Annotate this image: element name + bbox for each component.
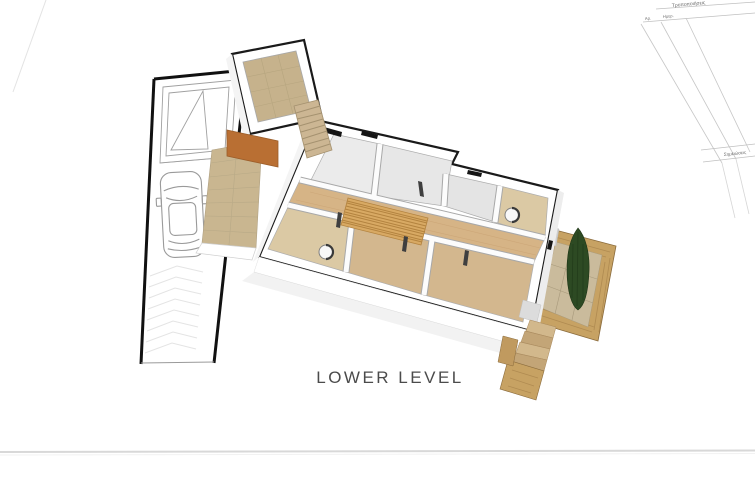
title-block: Τροποποιήσεις Αρ. Ημερ. Σημειώσεις — [641, 0, 755, 218]
sheet-bottom-border — [0, 451, 755, 453]
notes-header-label: Σημειώσεις — [723, 149, 747, 157]
plan-level-label: LOWER LEVEL — [316, 368, 464, 387]
building-main-block — [242, 117, 564, 358]
revisions-header-label: Τροποποιήσεις — [672, 0, 707, 9]
car-body — [160, 171, 205, 258]
title-block-notes-line — [703, 156, 755, 162]
revision-number-column-label: Αρ. — [645, 15, 652, 21]
title-block-line — [643, 13, 755, 22]
title-block-column-line — [736, 159, 749, 214]
floor-plan-svg: Τροποποιήσεις Αρ. Ημερ. Σημειώσεις — [0, 0, 755, 503]
drawing-sheet: Τροποποιήσεις Αρ. Ημερ. Σημειώσεις — [0, 0, 755, 503]
title-block-column-line — [722, 163, 735, 218]
sheet-bottom-border-shadow — [0, 454, 755, 456]
title-block-column-line — [641, 24, 722, 163]
title-block-column-line — [661, 22, 736, 159]
sheet-left-border — [13, 0, 46, 92]
entry-room — [226, 40, 332, 167]
revision-date-column-label: Ημερ. — [663, 13, 674, 19]
